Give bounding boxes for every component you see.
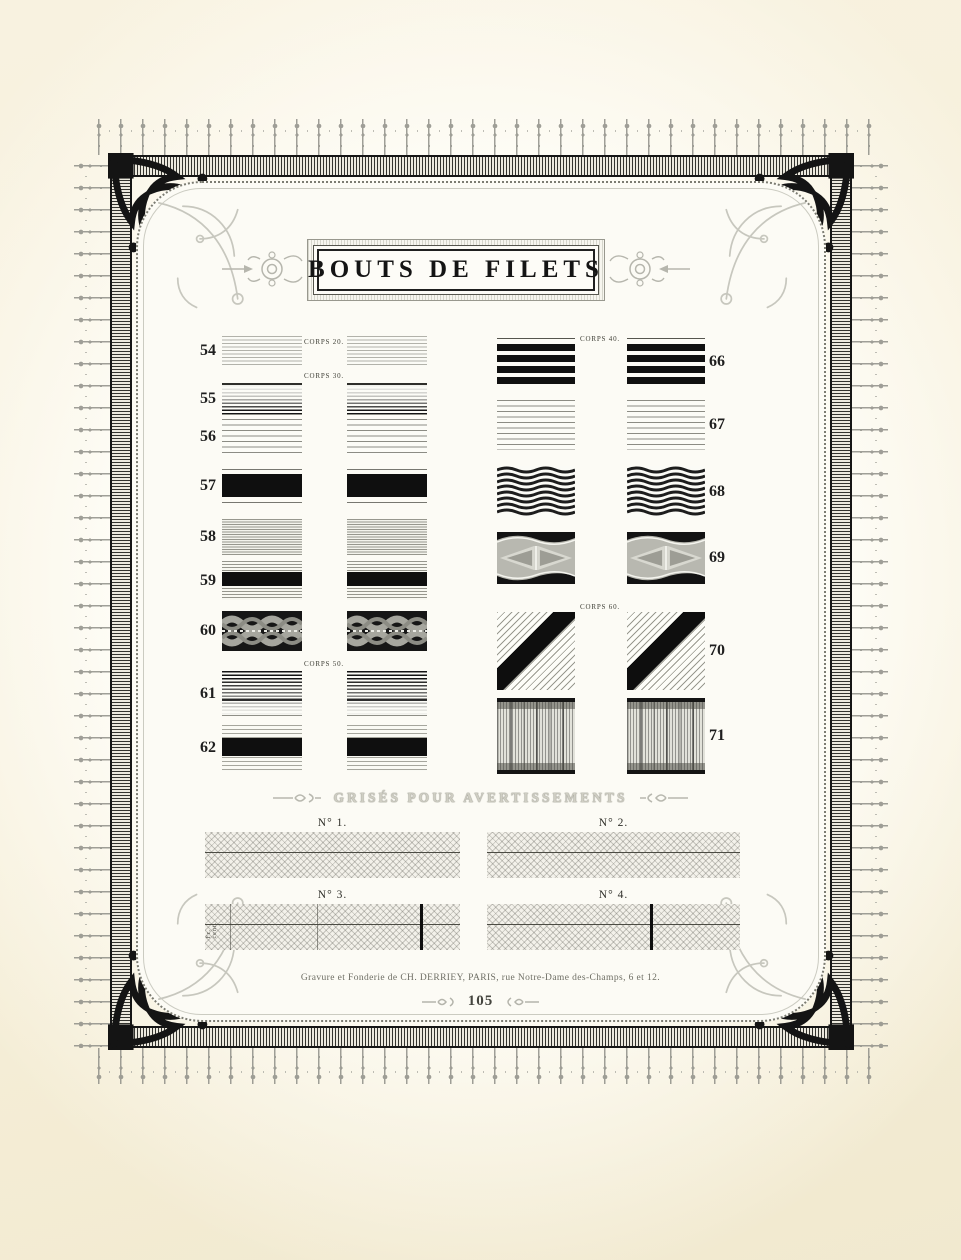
specimen-row: CORPS 40. 66 [497,338,747,386]
grise-label: N° 3. [205,889,460,901]
specimen-swatch [497,338,575,386]
grise-thick-rule [420,904,423,950]
specimen-swatch [627,338,705,386]
specimen-swatch [222,469,302,503]
specimen-number: 58 [190,528,216,546]
specimen-swatch [222,725,302,771]
wave-lines-swatch [627,466,705,518]
specimen-number: 70 [709,642,743,660]
specimen-number: 59 [190,572,216,590]
grises-heading: GRISÉS POUR AVERTISSEMENTS [333,790,627,806]
specimen-swatch [497,698,575,774]
specimen-swatch [627,400,705,450]
specimen-number: 56 [190,428,216,446]
specimen-row: 54 CORPS 20. [196,336,430,366]
title-rosette-icon [220,250,306,288]
fringe-border-bottom [88,1048,872,1084]
specimen-row: 60 [196,611,430,651]
grise-thick-rule [650,904,653,950]
specimen-swatch [497,400,575,450]
title-rosette-icon [606,250,692,288]
wave-lines-swatch [497,466,575,518]
fringe-border-left [74,155,110,1048]
fringe-border-top [88,119,872,155]
grise-midline [205,852,460,853]
grise-sample: Fr. cent. [205,904,460,950]
squiggle-icon [638,792,690,804]
grise-label: N° 4. [487,889,740,901]
corps-caption: CORPS 40. [567,336,633,343]
specimen-swatch [347,519,427,555]
grises-heading-row: GRISÉS POUR AVERTISSEMENTS [0,790,961,806]
specimen-number: 66 [709,353,743,371]
specimen-number: 62 [190,739,216,757]
specimen-swatch [497,612,575,690]
grise-sample [487,832,740,878]
grise-sample [205,832,460,878]
foundry-imprint: Gravure et Fonderie de CH. DERRIEY, PARI… [0,973,961,983]
corps-caption: CORPS 60. [567,604,633,611]
grise-label: N° 1. [205,817,460,829]
specimen-row: 57 [196,469,430,503]
squiggle-icon [420,995,460,1009]
specimen-swatch [347,383,427,415]
specimen-swatch [222,519,302,555]
fringe-border-right [852,155,888,1048]
specimen-row: CORPS 60. 70 [497,612,747,690]
specimen-swatch [222,336,302,366]
specimen-number: 60 [190,622,216,640]
specimen-swatch [347,671,427,716]
grise-column-rule [317,904,318,950]
specimen-swatch [347,469,427,503]
specimen-number: 68 [709,483,743,501]
ornament-band-swatch [497,532,575,584]
title-box: BOUTS DE FILETS [307,239,605,301]
squiggle-icon [271,792,323,804]
specimen-row: 55 CORPS 30. [196,383,430,415]
specimen-swatch [222,671,302,716]
grise-sample [487,904,740,950]
grise-midline [487,924,740,925]
grise-column-rule [230,904,231,950]
specimen-sheet: BOUTS DE FILETS 54 CORPS 20. 55 CORPS 30… [0,0,961,1260]
page-number: 105 [468,993,494,1010]
frame-band-left [110,155,132,1048]
page-title: BOUTS DE FILETS [308,256,604,284]
squiggle-icon [501,995,541,1009]
specimen-swatch [347,725,427,771]
corner-flourish-icon [692,196,812,316]
specimen-row: 62 [196,725,430,771]
specimen-number: 61 [190,685,216,703]
specimen-swatch [222,419,302,455]
grise-label: N° 2. [487,817,740,829]
specimen-row: 71 [497,698,747,774]
specimen-row: 68 [497,466,747,518]
wave-ornament-swatch [347,611,427,651]
specimen-row: 61 CORPS 50. [196,671,430,716]
frame-band-right [830,155,852,1048]
specimen-number: 54 [190,342,216,360]
corps-caption: CORPS 20. [294,339,354,346]
specimen-row: 67 [497,400,747,450]
page-number-row: 105 [0,993,961,1010]
specimen-swatch [627,698,705,774]
specimen-number: 71 [709,727,743,745]
ornament-band-swatch [627,532,705,584]
grise-side-label: Fr. cent. [206,916,218,939]
grise-midline [487,852,740,853]
specimen-swatch [627,612,705,690]
specimen-swatch [222,561,302,600]
specimen-swatch [222,383,302,415]
specimen-number: 67 [709,416,743,434]
specimen-row: 59 [196,561,430,600]
specimen-swatch [347,419,427,455]
specimen-swatch [347,336,427,366]
corps-caption: CORPS 30. [294,373,354,380]
specimen-number: 57 [190,477,216,495]
specimen-swatch [347,561,427,600]
wave-ornament-swatch [222,611,302,651]
specimen-row: 69 [497,532,747,584]
specimen-number: 55 [190,390,216,408]
corps-caption: CORPS 50. [294,661,354,668]
specimen-row: 58 [196,519,430,555]
specimen-number: 69 [709,549,743,567]
specimen-row: 56 [196,419,430,455]
